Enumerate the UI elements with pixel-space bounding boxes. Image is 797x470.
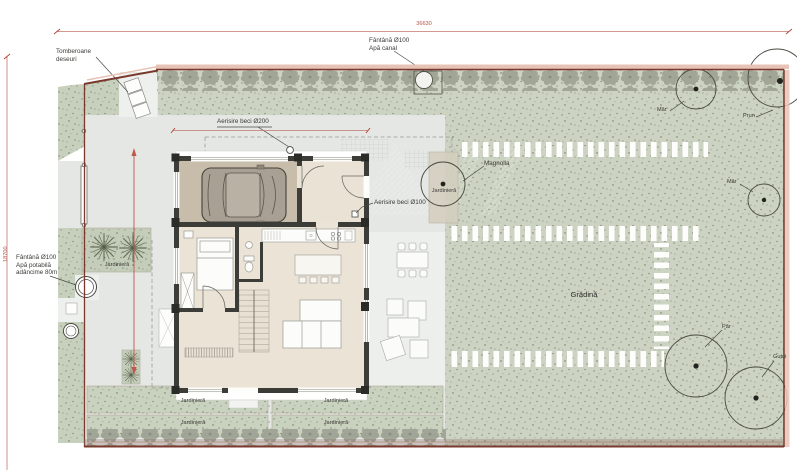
label-gradina: Grădină xyxy=(570,291,597,299)
label-fantana-canal-line2: Apă canal xyxy=(369,45,409,53)
label-jardiniera-palms: Jardinieră xyxy=(105,262,130,270)
dimension-top-value: 36630 xyxy=(416,21,432,29)
label-tomberoane-line1: Tomberoane xyxy=(56,48,91,56)
well-potable xyxy=(76,277,97,298)
label-fantana-potabila-line2: Apă potabilă xyxy=(16,262,57,270)
label-tomberoane-line2: deseuri xyxy=(56,56,91,64)
dimension-left-value: 18700 xyxy=(3,246,11,262)
label-jardiniera-magnolia: Jardinieră xyxy=(432,188,457,196)
label-aerisire-200: Aerisire beci Ø200 xyxy=(217,118,269,126)
house xyxy=(159,151,370,408)
label-fantana-potabila-line3: adâncime 80m xyxy=(16,269,57,277)
label-par: Păr xyxy=(722,324,731,332)
label-fantana-canal: Fântână Ø100 Apă canal xyxy=(369,37,409,52)
label-jardiniera-strip-4: Jardinieră xyxy=(324,420,349,428)
bench xyxy=(185,348,233,357)
label-jardiniera-strip-2: Jardinieră xyxy=(324,398,349,406)
kitchen-counter xyxy=(262,229,355,242)
wc-fixtures xyxy=(244,242,254,272)
stairs xyxy=(239,290,269,352)
entry-step xyxy=(229,400,258,408)
label-prun: Prun xyxy=(743,113,755,121)
label-aerisire-100: Aerisire beci Ø100 xyxy=(374,199,426,207)
plan-graphics xyxy=(0,0,797,470)
label-jardiniera-strip-1: Jardinieră xyxy=(181,398,206,406)
label-fantana-canal-line1: Fântână Ø100 xyxy=(369,37,409,45)
label-fantana-potabila: Fântână Ø100 Apă potabilă adâncime 80m xyxy=(16,254,57,277)
label-tomberoane: Tomberoane deseuri xyxy=(56,48,91,63)
site-plan-drawing: 36630 18700 Tomberoane deseuri Fântână Ø… xyxy=(0,0,797,470)
label-jardiniera-strip-3: Jardinieră xyxy=(181,420,206,428)
label-mar-right: Măr xyxy=(727,179,737,187)
label-gutui: Gutui xyxy=(773,354,786,362)
label-mar-top: Măr xyxy=(657,107,667,115)
label-magnolia: Magnolia xyxy=(484,160,510,168)
car xyxy=(202,165,286,225)
label-fantana-potabila-line1: Fântână Ø100 xyxy=(16,254,57,262)
hedge-top xyxy=(156,70,784,91)
vent-200 xyxy=(287,147,294,154)
